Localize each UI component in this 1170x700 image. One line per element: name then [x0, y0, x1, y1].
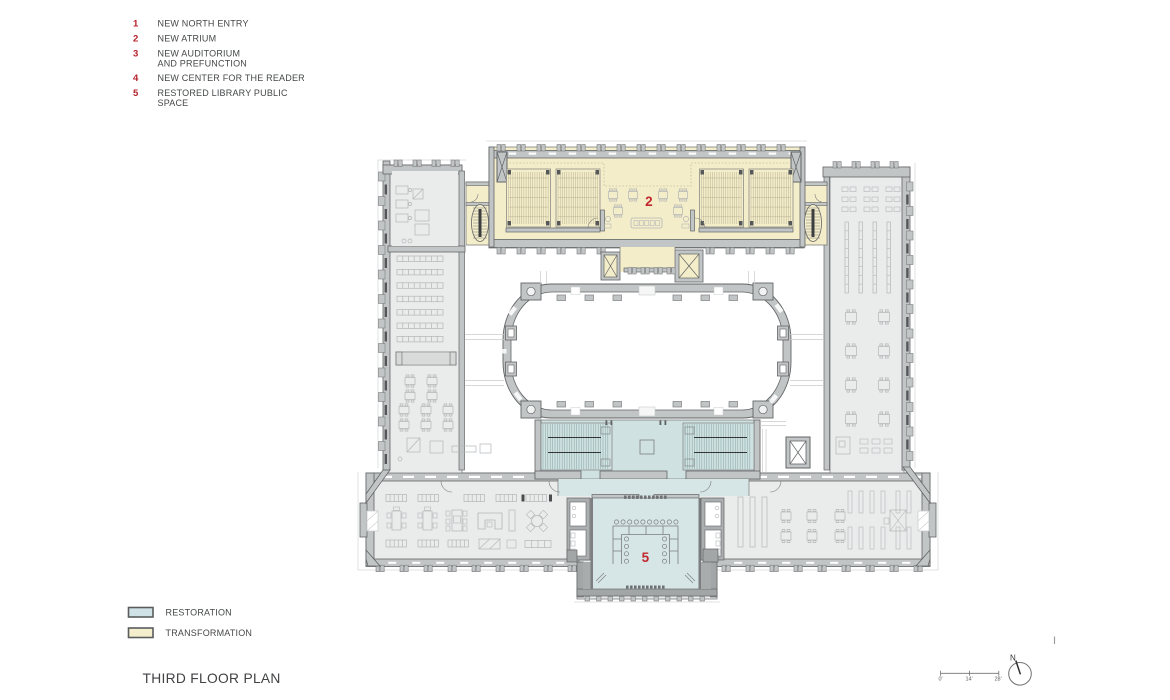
svg-text:3: 3 — [133, 49, 138, 60]
svg-text:RESTORATION: RESTORATION — [166, 608, 232, 618]
svg-text:28': 28' — [995, 677, 1002, 683]
svg-text:5: 5 — [642, 550, 650, 565]
svg-text:4: 4 — [133, 73, 139, 84]
svg-text:TRANSFORMATION: TRANSFORMATION — [166, 628, 253, 638]
svg-text:2: 2 — [645, 194, 653, 209]
svg-text:NEW NORTH ENTRY: NEW NORTH ENTRY — [158, 19, 249, 29]
svg-text:1: 1 — [133, 19, 139, 30]
svg-text:NEW ATRIUM: NEW ATRIUM — [158, 34, 217, 44]
svg-text:RESTORED LIBRARY PUBLIC: RESTORED LIBRARY PUBLIC — [158, 88, 288, 98]
svg-text:AND PREFUNCTION: AND PREFUNCTION — [158, 58, 248, 68]
svg-text:N: N — [1010, 654, 1016, 663]
svg-text:THIRD FLOOR PLAN: THIRD FLOOR PLAN — [143, 671, 281, 686]
svg-text:5: 5 — [133, 88, 139, 99]
svg-text:2: 2 — [133, 34, 138, 45]
svg-text:SPACE: SPACE — [158, 98, 189, 108]
svg-text:NEW CENTER FOR THE READER: NEW CENTER FOR THE READER — [158, 73, 306, 83]
svg-text:NEW AUDITORIUM: NEW AUDITORIUM — [158, 49, 241, 59]
svg-text:0': 0' — [939, 677, 943, 683]
svg-text:14': 14' — [966, 677, 973, 683]
